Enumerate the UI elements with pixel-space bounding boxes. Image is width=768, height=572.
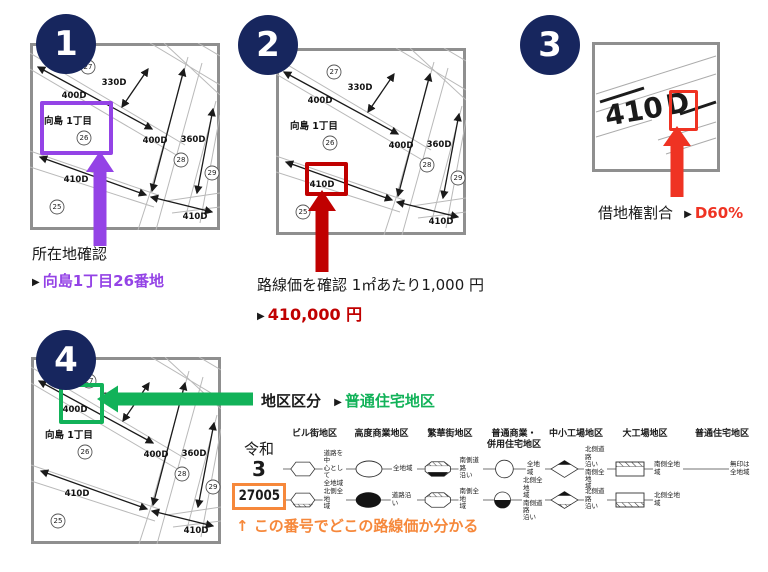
step-3-up-arrow [663, 126, 691, 197]
step-1-marker-icon: ▶ [32, 277, 40, 288]
legend-header: 大工場地区 [607, 429, 683, 453]
legend-row: 北側全地 域 [283, 484, 346, 515]
legend-column-commercial-residential: 普通商業・ 併用住宅地区 全地域 北側全地 域 南側道路 沿い [483, 429, 545, 515]
legend-symbol-rect-top-hatch [607, 457, 653, 481]
legend-label: 南側全地 域 [654, 461, 680, 476]
legend-symbol-plain-line [683, 457, 729, 481]
legend-row: 全地域 [346, 453, 417, 484]
rosenka-tutorial: 400D 330D 400D 360D 410D 410D 向島 1丁目 27 … [0, 0, 768, 572]
legend-symbol-octagon-hatch-black [417, 457, 459, 481]
legend-label: 北側全地 域 [654, 492, 680, 507]
legend-symbol-ellipse-filled [346, 488, 391, 512]
page-number-note: ↑ この番号でどこの路線価か分かる [236, 515, 478, 536]
step-3-caption-title: 借地権割合 [598, 204, 673, 222]
legend-label: 北側道路 沿い [585, 488, 607, 510]
step-4-caption-value: 普通住宅地区 [345, 392, 435, 410]
step-1-highlight-rect [40, 101, 113, 155]
legend-header: 普通商業・ 併用住宅地区 [483, 429, 545, 453]
legend-column-normal-residential: 普通住宅地区 無印は 全地域 [683, 429, 761, 515]
legend-header: 繁華街地区 [417, 429, 483, 453]
page-number: 27005 [238, 488, 279, 504]
legend-column-large-factory: 大工場地区 南側全地 域 北側全地 域 [607, 429, 683, 515]
step-1-caption: 所在地確認 ▶向島1丁目26番地 [32, 243, 164, 291]
legend-label: 無印は 全地域 [730, 461, 750, 476]
legend-symbol-circle-outline [483, 457, 526, 481]
step-2-caption-title: 路線価を確認 1㎡あたり1,000 円 [257, 274, 484, 295]
legend-symbol-circle-bottom-black [483, 488, 522, 512]
legend-row: 無印は 全地域 [683, 453, 761, 484]
step-1-up-arrow [86, 151, 114, 246]
legend-symbol-empty [683, 488, 729, 512]
step-4-badge: 4 [36, 330, 96, 390]
district-legend: ビル街地区 道路を中 心として 全地域 北側全地 域 高度商業地区 [283, 429, 761, 515]
page-number-box: 27005 [232, 483, 286, 510]
step-2-marker-icon: ▶ [257, 311, 265, 322]
step-4-left-arrow [97, 385, 253, 413]
step-2-number: 2 [256, 28, 280, 62]
step-4-caption-title: 地区区分 [261, 392, 321, 410]
legend-symbol-diamond-black-hatch [545, 488, 584, 512]
legend-row: 南側道路 沿い [417, 453, 483, 484]
legend-header: 高度商業地区 [346, 429, 417, 453]
legend-row: 北側全地 域 南側道路 沿い [483, 484, 545, 515]
legend-label: 北側全地 域 [324, 488, 346, 510]
legend-label: 南側全地 域 [460, 488, 483, 510]
legend-symbol-octagon-top-hatch [417, 488, 459, 512]
legend-row: 道路沿い [346, 484, 417, 515]
legend-row [683, 484, 761, 515]
legend-symbol-rect-bottom-hatch [607, 488, 653, 512]
step-3-badge: 3 [520, 15, 580, 75]
step-2-caption-value: 410,000 円 [268, 305, 362, 324]
legend-symbol-diamond-top-black [545, 457, 584, 481]
legend-header: 普通住宅地区 [683, 429, 761, 453]
legend-label: 北側全地 域 南側道路 沿い [523, 477, 545, 522]
step-1-caption-title: 所在地確認 [32, 243, 164, 264]
legend-label: 全地域 [527, 461, 545, 476]
step-1-caption-value: 向島1丁目26番地 [43, 272, 164, 290]
era-label: 令和 [232, 441, 286, 458]
era-year: 3 [232, 458, 286, 480]
step-2-up-arrow [308, 190, 336, 272]
legend-row: 北側全地 域 [607, 484, 683, 515]
legend-row: 南側全地 域 [417, 484, 483, 515]
legend-label: 道路沿い [392, 492, 417, 507]
map-step-2 [276, 48, 466, 235]
legend-row: 北側道路 沿い 南側全地 域 [545, 453, 607, 484]
map-step-3-zoomed: 410 D [592, 42, 720, 172]
legend-label: 全地域 [393, 465, 413, 472]
legend-symbol-ellipse-outline [346, 457, 392, 481]
step-2-caption: 路線価を確認 1㎡あたり1,000 円 ▶410,000 円 [257, 274, 484, 325]
legend-column-busy-street: 繁華街地区 南側道路 沿い 南側全地 域 [417, 429, 483, 515]
legend-symbol-hexagon-outline [283, 457, 323, 481]
legend-column-high-commercial: 高度商業地区 全地域 道路沿い [346, 429, 417, 515]
step-3-highlight-rect [669, 90, 698, 131]
step-2-badge: 2 [238, 15, 298, 75]
legend-column-small-factory: 中小工場地区 北側道路 沿い 南側全地 域 北側道路 沿い [545, 429, 607, 515]
legend-column-building-street: ビル街地区 道路を中 心として 全地域 北側全地 域 [283, 429, 346, 515]
legend-symbol-hexagon-bottom-hatch [283, 488, 323, 512]
legend-label: 南側道路 沿い [460, 457, 483, 479]
step-1-badge: 1 [36, 14, 96, 74]
legend-row: 道路を中 心として 全地域 [283, 453, 346, 484]
step-4-marker-icon: ▶ [334, 397, 342, 408]
step-3-caption: 借地権割合 ▶D60% [598, 202, 743, 223]
step-4-number: 4 [54, 343, 78, 377]
step-1-number: 1 [54, 27, 78, 61]
reiwa-year-block: 令和 3 27005 [232, 441, 286, 510]
legend-row: 南側全地 域 [607, 453, 683, 484]
step-3-marker-icon: ▶ [684, 209, 692, 220]
step-3-number: 3 [538, 28, 562, 62]
step-4-caption: 地区区分 ▶普通住宅地区 [261, 390, 435, 411]
legend-row: 北側道路 沿い [545, 484, 607, 515]
legend-label: 道路を中 心として 全地域 [324, 450, 346, 487]
step-3-caption-value: D60% [695, 204, 743, 222]
